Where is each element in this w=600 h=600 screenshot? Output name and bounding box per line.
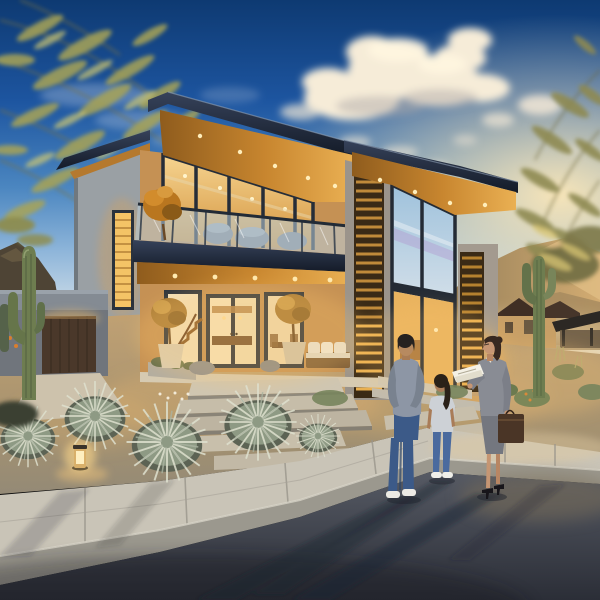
agent-briefcase <box>498 414 524 443</box>
left-wing-window <box>112 210 134 310</box>
girl-sneaker <box>431 472 442 478</box>
entry-glow <box>135 283 365 387</box>
agent-hair-bun <box>495 336 502 343</box>
girl-sneaker <box>442 472 453 478</box>
man-sneaker <box>402 489 416 496</box>
photo-canvas <box>0 0 600 600</box>
man-sneaker <box>386 491 400 498</box>
man-hair <box>398 334 413 348</box>
